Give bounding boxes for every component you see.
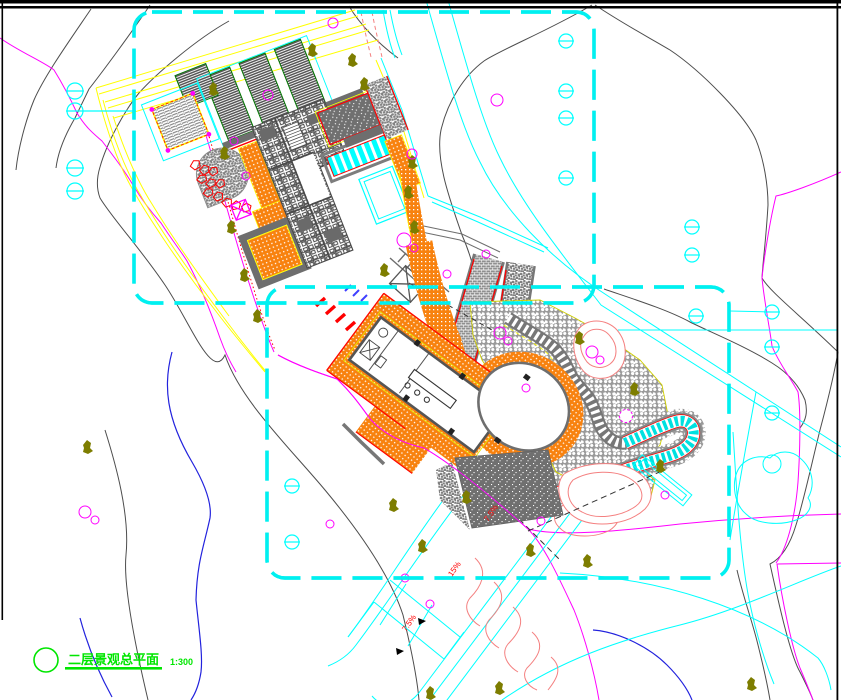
svg-text:二层景观总平面: 二层景观总平面 [68, 652, 159, 667]
svg-text:1:300: 1:300 [170, 657, 193, 667]
